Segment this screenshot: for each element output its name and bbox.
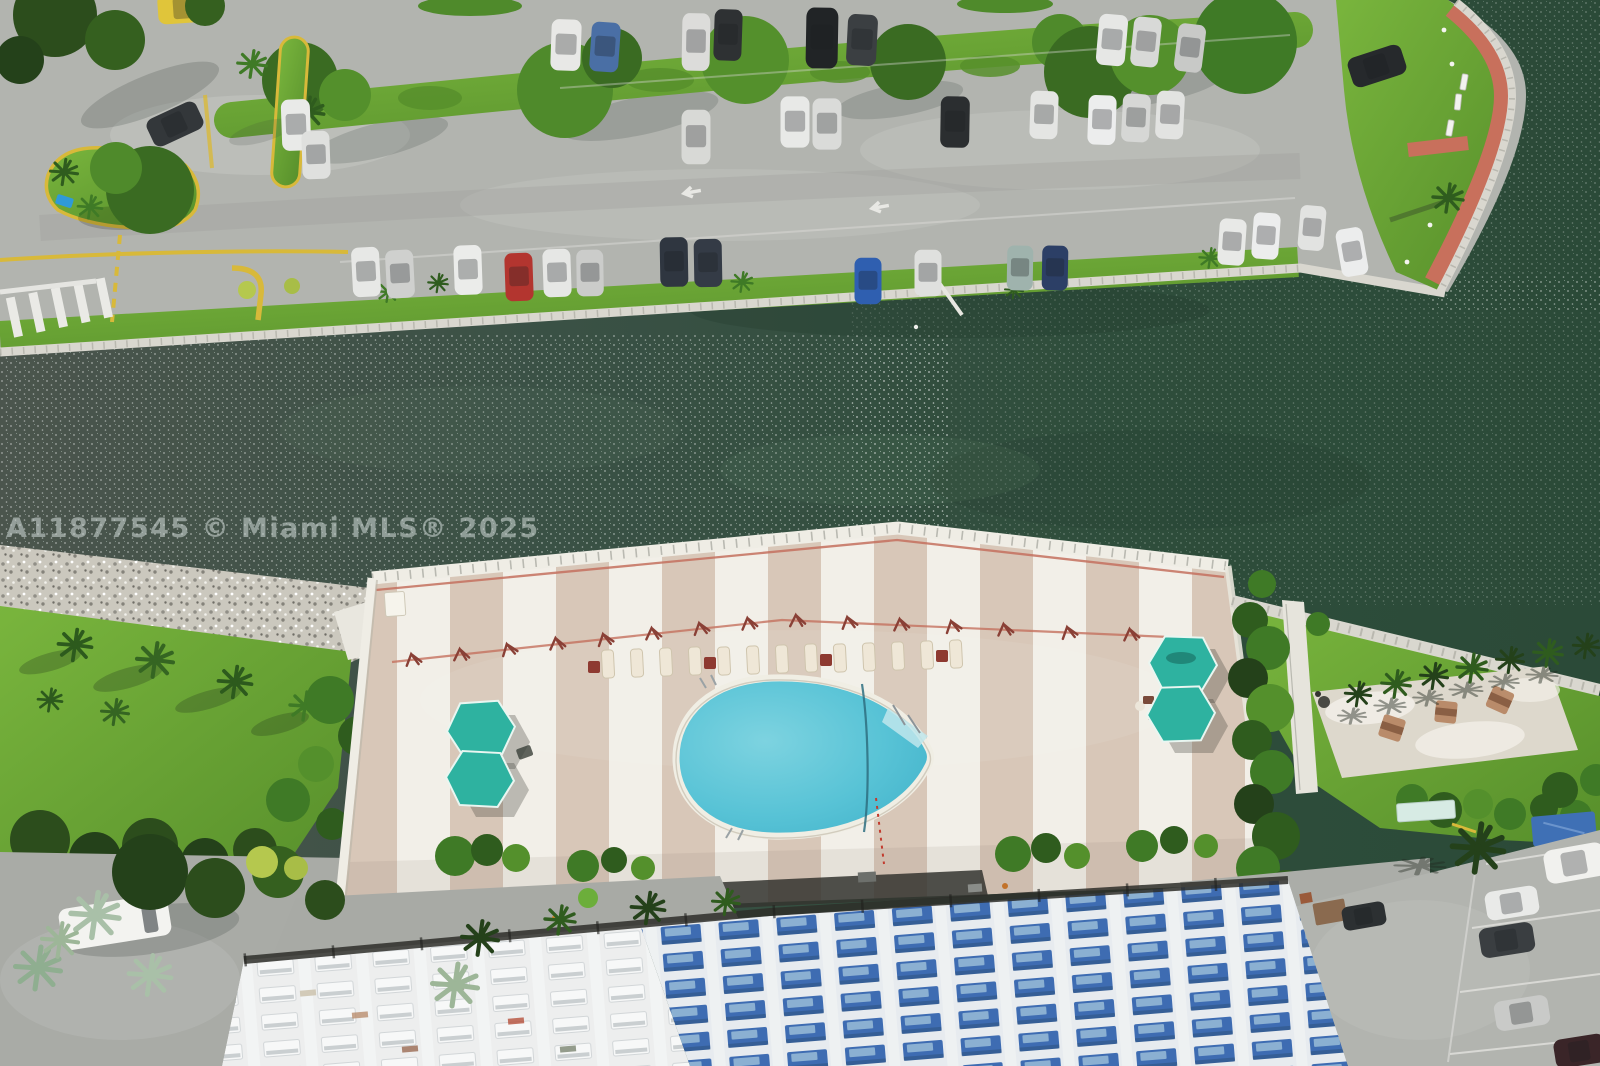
deck-corner-hut (384, 591, 406, 616)
garden-shed-roof (1396, 800, 1455, 822)
pool-deck (338, 528, 1270, 918)
aerial-photo-canvas: A11877545 © Miami MLS® 2025 (0, 0, 1600, 1066)
aerial-photo: A11877545 © Miami MLS® 2025 (0, 0, 1600, 1066)
mls-watermark: A11877545 © Miami MLS® 2025 (6, 513, 540, 544)
